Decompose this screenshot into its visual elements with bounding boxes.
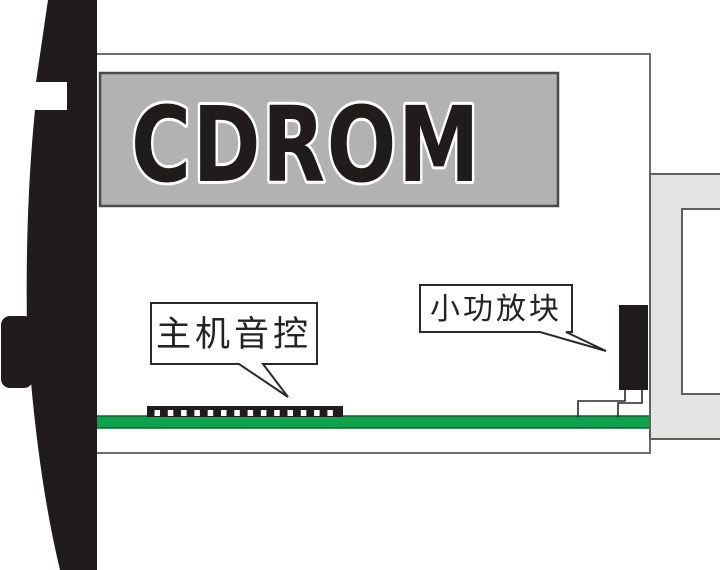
connector-pin <box>194 410 200 416</box>
connector-pin <box>248 410 254 416</box>
diagram-canvas: CDROM 主机音控 小功放块 <box>0 0 720 570</box>
bezel-shape <box>27 0 97 570</box>
connector-body <box>147 406 343 417</box>
connector-pin <box>274 410 280 416</box>
connector-pin <box>301 410 307 416</box>
rear-bracket <box>650 174 720 439</box>
connector-pin <box>261 410 267 416</box>
connector-pin <box>327 410 333 416</box>
cdrom-label: CDROM <box>131 84 481 206</box>
connector-pin <box>155 410 161 416</box>
connector-pin <box>288 410 294 416</box>
connector-pin <box>314 410 320 416</box>
front-bezel <box>1 0 97 570</box>
small-amplifier-block <box>619 305 648 390</box>
connector-pin <box>234 410 240 416</box>
callout-host-audio-label: 主机音控 <box>156 315 312 355</box>
connector-pin <box>181 410 187 416</box>
connector-pin <box>168 410 174 416</box>
connector-pin <box>208 410 214 416</box>
host-audio-control-connector <box>147 406 343 417</box>
pcb-board <box>95 416 650 428</box>
connector-pin <box>221 410 227 416</box>
callout-small-amplifier-label: 小功放块 <box>430 292 562 327</box>
cdrom-schematic-diagram: CDROM 主机音控 小功放块 <box>0 0 720 570</box>
